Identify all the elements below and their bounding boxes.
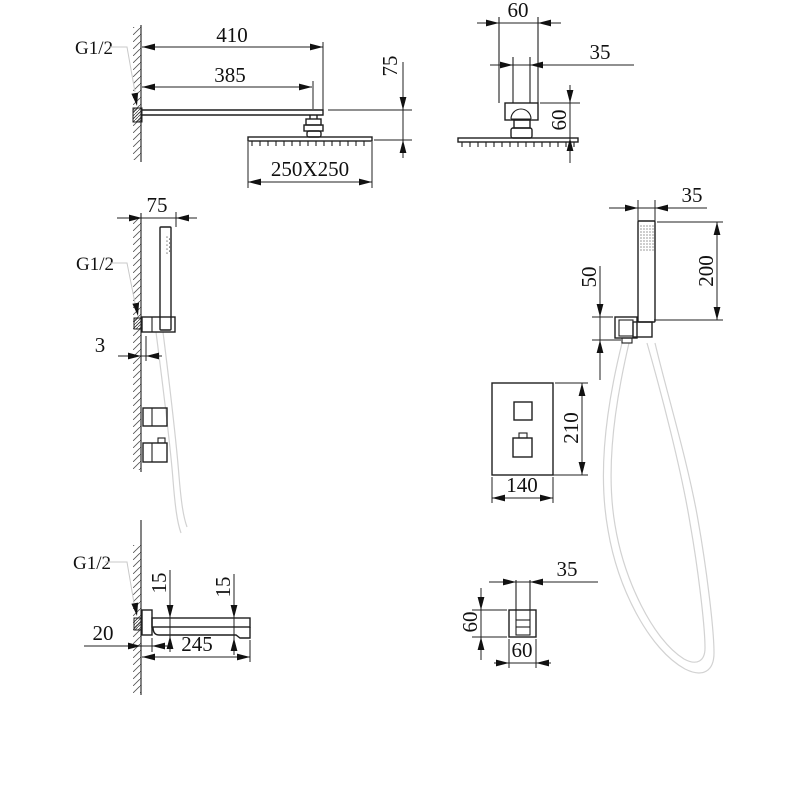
dim-spout-height-front: 15 bbox=[211, 574, 237, 655]
dim-wand-width: 35 bbox=[609, 183, 707, 221]
connector-foot bbox=[511, 128, 532, 138]
dim-pipe-width: 35 bbox=[490, 40, 634, 68]
valve-handle-side-top bbox=[143, 408, 167, 426]
dim-bracket-offset: 75 bbox=[117, 193, 197, 227]
technical-drawing-page: G1/2 410 385 75 bbox=[0, 0, 800, 800]
dim-flange-width: 60 bbox=[477, 0, 561, 26]
hand-shower-wand bbox=[160, 227, 171, 330]
valve-front-view: 210 140 bbox=[492, 383, 588, 503]
wall-inlet bbox=[134, 318, 142, 329]
dim-label: 60 bbox=[508, 0, 529, 22]
dim-plate-height: 60 bbox=[458, 588, 507, 660]
rain-shower-side-view: G1/2 410 385 75 bbox=[75, 23, 412, 188]
dim-label: 210 bbox=[559, 412, 583, 444]
wall-inlet bbox=[133, 108, 142, 122]
spout-side-view: G1/2 15 15 20 bbox=[73, 520, 250, 695]
hand-shower-side-view: G1/2 75 3 bbox=[76, 193, 197, 533]
nozzle-ticks bbox=[462, 142, 574, 147]
dim-label: 15 bbox=[147, 573, 171, 594]
wall-escutcheon bbox=[142, 610, 152, 635]
dim-head-drop: 75 bbox=[328, 56, 412, 159]
hand-shower-wand bbox=[638, 221, 655, 322]
connector-housing bbox=[505, 103, 538, 120]
supply-pipe-lines bbox=[513, 57, 530, 103]
dim-label: 75 bbox=[147, 193, 168, 217]
leader-line bbox=[110, 47, 135, 92]
hose-line bbox=[156, 332, 181, 533]
spray-dots bbox=[167, 237, 170, 253]
dim-label: 20 bbox=[93, 621, 114, 645]
spray-face-dots bbox=[641, 226, 653, 250]
head-connector-nut-lower bbox=[304, 125, 323, 131]
dim-label: 3 bbox=[95, 333, 106, 357]
valve-knob-top bbox=[514, 402, 532, 420]
dim-label: 35 bbox=[590, 40, 611, 64]
dim-label: 60 bbox=[547, 110, 571, 131]
wand-handle-end bbox=[633, 322, 652, 337]
wall-hatch bbox=[133, 218, 141, 470]
escutcheon-square bbox=[509, 610, 536, 637]
dim-head-size: 250X250 bbox=[248, 142, 372, 188]
dim-label: 250X250 bbox=[271, 157, 349, 181]
dim-label: 75 bbox=[378, 56, 402, 77]
spout-top-view: 35 60 60 bbox=[458, 557, 598, 668]
dim-label: 15 bbox=[211, 577, 235, 598]
dim-wall-gap: 3 bbox=[95, 333, 162, 361]
dim-plate-depth: 20 bbox=[84, 621, 168, 652]
head-connector-nut-upper bbox=[306, 119, 321, 125]
shower-system-drawing: G1/2 410 385 75 bbox=[0, 0, 800, 800]
shower-head-plate bbox=[248, 137, 372, 141]
valve-tab bbox=[158, 438, 165, 443]
dim-label: 35 bbox=[682, 183, 703, 207]
nozzle-ticks bbox=[252, 141, 364, 146]
dim-plate-width: 140 bbox=[492, 473, 553, 503]
valve-knob-bottom bbox=[513, 438, 532, 457]
thread-label: G1/2 bbox=[73, 553, 111, 574]
dim-pipe-width: 35 bbox=[489, 557, 598, 585]
dim-label: 60 bbox=[512, 638, 533, 662]
dim-head-gap: 60 bbox=[540, 85, 580, 163]
dim-label: 35 bbox=[557, 557, 578, 581]
ball-joint-dome bbox=[511, 109, 531, 119]
dim-label: 50 bbox=[577, 267, 601, 288]
rain-shower-front-view: 60 35 60 bbox=[458, 0, 634, 163]
wall-inlet bbox=[134, 618, 142, 630]
valve-knob-tab bbox=[519, 433, 527, 438]
holder-knob bbox=[619, 320, 633, 336]
dim-label: 140 bbox=[506, 473, 538, 497]
dim-label: 245 bbox=[181, 632, 213, 656]
valve-handle-side-bottom bbox=[143, 443, 167, 462]
spout-body bbox=[152, 618, 250, 627]
dim-spout-height-rear: 15 bbox=[147, 570, 173, 652]
hose-loop-outer bbox=[603, 343, 714, 673]
thread-label: G1/2 bbox=[75, 38, 113, 59]
hand-shower-front-view: 35 200 50 bbox=[577, 183, 723, 673]
dim-arm-reach: 385 bbox=[142, 63, 313, 109]
dim-label: 200 bbox=[694, 255, 718, 287]
valve-plate bbox=[492, 383, 553, 475]
shower-head-plate-edge bbox=[458, 138, 578, 142]
thread-label: G1/2 bbox=[76, 254, 114, 275]
dim-plate-width: 60 bbox=[494, 638, 551, 668]
shower-arm bbox=[142, 110, 323, 115]
dim-plate-height: 210 bbox=[553, 383, 588, 475]
spout-pipe-lines bbox=[516, 580, 530, 620]
dim-label: 385 bbox=[214, 63, 246, 87]
connector-nut bbox=[514, 120, 530, 128]
dim-label: 60 bbox=[458, 612, 482, 633]
head-connector-foot bbox=[307, 131, 321, 137]
hose-loop-inner bbox=[611, 343, 705, 662]
ceiling-flange-lines bbox=[499, 17, 538, 103]
holder-nut bbox=[622, 338, 632, 343]
dim-wand-length: 200 bbox=[654, 222, 723, 320]
dim-label: 410 bbox=[216, 23, 248, 47]
